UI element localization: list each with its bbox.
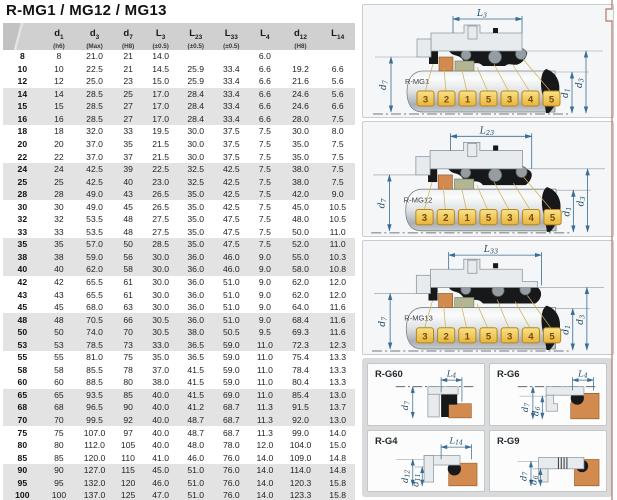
cell-value: 33 [42,226,77,239]
row-size: 85 [3,451,42,464]
cell-value: 51.0 [214,276,250,289]
cell-value: 26.5 [143,188,178,201]
cell-value: 47.5 [214,238,250,251]
row-size: 25 [3,175,42,188]
cell-value: 41.5 [178,389,214,402]
cell-value: 49.0 [76,188,113,201]
cell-value: 76.0 [214,464,250,477]
row-size: 40 [3,263,42,276]
dim-label-d7: d7 [401,401,411,410]
datasheet-page: R-MG1 / MG12 / MG13 d1(h6)d3(Max)d7(H8)L… [0,0,617,500]
cell-value: 68.7 [214,426,250,439]
cell-value: 85 [42,451,77,464]
cell-value [214,50,250,63]
cell-value: 21.6 [281,75,321,88]
cell-value: 14.0 [143,50,178,63]
row-size: 33 [3,226,42,239]
cell-value: 65.5 [76,276,113,289]
row-size: 10 [3,62,42,75]
cell-value: 60 [42,376,77,389]
cell-value: 36.0 [178,263,214,276]
row-size: 65 [3,389,42,402]
row-size: 90 [3,464,42,477]
cell-value: 90 [42,464,77,477]
callout: 1 [465,331,471,342]
cell-value: 9.0 [249,301,281,314]
cell-value: 47.0 [143,489,178,500]
cell-value: 15.8 [320,476,355,489]
callout: 4 [529,213,535,224]
cell-value: 14.0 [249,464,281,477]
cell-value: 32.0 [76,125,113,138]
cell-value: 17.0 [143,113,178,126]
cell-value: 110 [113,451,144,464]
table-row: 7575107.09740.048.768.711.399.014.0 [3,426,355,439]
table-row: 434365.56130.036.051.09.062.012.0 [3,288,355,301]
cell-value: 33.0 [143,338,178,351]
dim-label-d3: d3 [577,196,588,206]
cell-value: 74.0 [76,326,113,339]
table-row: 555581.07535.036.559.011.075.413.3 [3,351,355,364]
seal-diagram-r-mg1: R-MG1 3 2 1 5 3 4 5 L3 d7 d1 d3 [362,4,614,118]
table-row: 202037.03521.530.037.57.535.07.5 [3,138,355,151]
cell-value: 120.0 [76,451,113,464]
row-size: 55 [3,351,42,364]
cell-value: 50 [113,238,144,251]
cell-value: 35.0 [178,238,214,251]
cell-value: 19.2 [281,62,321,75]
cell-value: 62.0 [76,263,113,276]
row-size: 100 [3,489,42,500]
cell-value: 10.3 [320,251,355,264]
cell-value: 50.0 [281,226,321,239]
column-header: L4 [249,23,281,50]
detail-r-g60: R-G60 L4 d7 [367,363,485,426]
cell-value: 37.0 [143,364,178,377]
cell-value: 27 [113,113,144,126]
seat-part [439,57,453,71]
cell-value: 33.4 [214,113,250,126]
cell-value: 68.4 [281,313,321,326]
cell-value: 51.0 [214,301,250,314]
cell-value: 42.5 [76,163,113,176]
spec-table-header-row: d1(h6)d3(Max)d7(H8)L3(±0.5)L23(±0.5)L33(… [3,23,355,50]
cell-value: 38.0 [281,175,321,188]
cell-value: 30.0 [143,301,178,314]
cell-value: 40.0 [143,426,178,439]
cell-value: 46.0 [143,476,178,489]
table-row: 222237.03721.530.037.57.535.07.5 [3,150,355,163]
cell-value: 80.4 [281,376,321,389]
row-size: 50 [3,326,42,339]
cell-value: 23 [113,75,144,88]
cell-value: 112.0 [76,439,113,452]
cell-value: 97 [113,426,144,439]
cell-value: 15 [42,100,77,113]
cell-value: 57.0 [76,238,113,251]
cell-value: 42 [42,276,77,289]
cell-value: 36.0 [178,276,214,289]
dim-label-d3: d3 [575,78,586,88]
callout: 4 [528,95,534,106]
table-row: 141428.52517.028.433.46.624.65.6 [3,88,355,101]
cell-value: 7.5 [249,213,281,226]
row-size: 22 [3,150,42,163]
cell-value: 40 [42,263,77,276]
cell-value: 8 [42,50,77,63]
cell-value: 11.3 [249,426,281,439]
dim-label-d1: d1 [561,88,572,98]
cell-value: 32 [42,213,77,226]
cell-value: 120 [113,476,144,489]
cell-value: 18 [42,125,77,138]
cell-value: 100 [42,489,77,500]
cell-value: 13.3 [320,376,355,389]
cell-value: 58 [42,364,77,377]
cell-value: 7.5 [249,188,281,201]
cell-value: 127.0 [76,464,113,477]
cell-value: 12.3 [320,338,355,351]
cell-value: 9.0 [249,251,281,264]
cell-value: 6.0 [249,50,281,63]
cell-value: 12.0 [320,276,355,289]
cell-value: 65.5 [76,288,113,301]
table-row: 535378.57333.036.559.011.072.312.3 [3,338,355,351]
table-row: 484870.56630.536.051.09.068.411.6 [3,313,355,326]
column-header: d3(Max) [76,23,113,50]
dim-label-d7: d7 [377,198,388,209]
callout: 2 [443,213,448,224]
cell-value: 33.4 [214,75,250,88]
cell-value: 12.0 [320,288,355,301]
cell-value: 9.5 [249,326,281,339]
cell-value: 68 [42,401,77,414]
callout: 3 [507,331,512,342]
cell-value: 10.5 [320,213,355,226]
cell-value: 78.5 [76,338,113,351]
cell-value: 11.3 [249,414,281,427]
cell-value: 99.0 [281,426,321,439]
cell-value: 15.8 [320,489,355,500]
cell-value: 42.5 [214,188,250,201]
cell-value: 11.0 [320,226,355,239]
cell-value: 62.0 [281,276,321,289]
cell-value: 37.5 [214,150,250,163]
dim-label-L14: L14 [449,436,464,446]
row-size: 80 [3,439,42,452]
cell-value: 48.7 [178,426,214,439]
cell-value: 80 [113,376,144,389]
cell-value: 13.0 [320,414,355,427]
spec-table: d1(h6)d3(Max)d7(H8)L3(±0.5)L23(±0.5)L33(… [3,23,355,500]
cell-value: 56 [113,251,144,264]
cell-value: 32.5 [178,175,214,188]
dim-label-d7: d7 [379,79,390,90]
cell-value: 70.5 [76,313,113,326]
cell-value: 11.0 [249,376,281,389]
cell-value: 30.0 [143,251,178,264]
table-row: 323253.54827.535.047.57.548.010.5 [3,213,355,226]
cell-value: 38.0 [143,376,178,389]
cell-value: 75.4 [281,351,321,364]
callout: 5 [549,331,555,342]
table-row: 656593.58540.041.569.011.085.413.0 [3,389,355,402]
cell-value: 76.0 [214,451,250,464]
cell-value: 37.5 [214,138,250,151]
cell-value: 53 [42,338,77,351]
cell-value: 7.5 [249,125,281,138]
cell-value: 5.6 [320,75,355,88]
row-size: 42 [3,276,42,289]
cell-value: 45 [113,200,144,213]
table-row: 353557.05028.535.047.57.552.011.0 [3,238,355,251]
cell-value: 14.8 [320,464,355,477]
column-header: L33(±0.5) [214,23,250,50]
cell-value: 48 [113,213,144,226]
row-size: 20 [3,138,42,151]
row-size: 30 [3,200,42,213]
cell-value: 35.0 [178,200,214,213]
cell-value: 30.0 [178,150,214,163]
cell-value: 14.5 [143,62,178,75]
cell-value: 99.5 [76,414,113,427]
cell-value: 85.5 [76,364,113,377]
table-row: 161628.52717.028.433.46.628.07.5 [3,113,355,126]
cell-value: 114.0 [281,464,321,477]
row-size: 60 [3,376,42,389]
cell-value: 7.5 [320,113,355,126]
cell-value: 107.0 [76,426,113,439]
cell-value: 7.5 [249,138,281,151]
cell-value: 41.0 [143,451,178,464]
cell-value: 42.5 [214,175,250,188]
cell-value: 52.0 [281,238,321,251]
cell-value: 46.0 [214,263,250,276]
cell-value: 92 [113,414,144,427]
cell-value: 22.5 [76,62,113,75]
cell-value: 59.0 [214,351,250,364]
table-row: 707099.59240.048.768.711.392.013.0 [3,414,355,427]
cell-value: 33.4 [214,88,250,101]
row-size: 75 [3,426,42,439]
cell-value: 27.5 [143,213,178,226]
table-row: 606088.58038.041.559.011.080.413.3 [3,376,355,389]
cell-value: 66 [113,313,144,326]
cell-value: 33 [113,125,144,138]
cell-value: 27.5 [143,226,178,239]
cell-value: 7.5 [249,226,281,239]
table-row: 686896.59040.041.268.711.391.513.7 [3,401,355,414]
dim-label-d3: d3 [576,315,587,325]
cell-value: 28.5 [143,238,178,251]
column-header: L14 [320,23,355,50]
cell-value: 51.0 [214,288,250,301]
cell-value: 24 [42,163,77,176]
dim-label-d12: d12 [401,469,411,482]
table-row: 383859.05630.036.046.09.055.010.3 [3,251,355,264]
cell-value: 59.0 [214,364,250,377]
cell-value: 76.0 [214,476,250,489]
cell-value: 78.0 [214,439,250,452]
row-size: 48 [3,313,42,326]
cell-value: 16 [42,113,77,126]
cell-value: 39 [113,163,144,176]
detail-r-g4: R-G4 L14 d12 d11 [367,430,485,493]
table-row: 9090127.011545.051.076.014.0114.014.8 [3,464,355,477]
cell-value: 28.5 [76,100,113,113]
cell-value: 59.0 [214,338,250,351]
cell-value: 137.0 [76,489,113,500]
table-row: 404062.05830.036.046.09.058.010.8 [3,263,355,276]
table-row: 333353.54827.535.047.57.550.011.0 [3,226,355,239]
cell-value: 51.0 [178,476,214,489]
cell-value: 69.0 [214,389,250,402]
cell-value: 32.5 [178,163,214,176]
cell-value: 13.3 [320,364,355,377]
column-header: d7(H8) [113,23,144,50]
cell-value: 22.5 [143,163,178,176]
cell-value: 40.0 [143,401,178,414]
cell-value: 30.0 [178,125,214,138]
cell-value: 70 [42,414,77,427]
cell-value: 43 [113,188,144,201]
cell-value: 11.6 [320,313,355,326]
cell-value: 38 [42,251,77,264]
cell-value: 92.0 [281,414,321,427]
cell-value: 25 [113,88,144,101]
cell-value [320,50,355,63]
callout: 1 [464,213,470,224]
cell-value: 7.5 [320,138,355,151]
table-row: 8821.02114.06.0 [3,50,355,63]
row-size: 70 [3,414,42,427]
row-size: 28 [3,188,42,201]
row-size: 14 [3,88,42,101]
cell-value: 115 [113,464,144,477]
cell-value: 7.5 [249,238,281,251]
cell-value: 19.5 [143,125,178,138]
cell-value: 45.0 [281,200,321,213]
cell-value: 21.5 [143,150,178,163]
cell-value: 20 [42,138,77,151]
cell-value: 95 [42,476,77,489]
column-header: L23(±0.5) [178,23,214,50]
callout: 2 [444,95,449,106]
cell-value: 28.5 [76,113,113,126]
spec-table-body: 8821.02114.06.0101022.52114.525.933.46.6… [3,50,355,500]
cell-value: 14.0 [249,451,281,464]
seal-diagram-r-mg12: R-MG12 3 2 1 5 3 4 5 L23 d7 d1 d3 [362,121,614,237]
cell-value: 38.0 [281,163,321,176]
dim-label-L23: L23 [479,126,494,137]
diagram-label: R-MG1 [405,77,429,86]
cell-value: 41.5 [178,364,214,377]
callout: 3 [507,95,512,106]
table-row: 100100137.012547.051.076.014.0123.315.8 [3,489,355,500]
cell-value: 40.0 [143,389,178,402]
cell-value: 53.5 [76,226,113,239]
cell-value: 35 [42,238,77,251]
cell-value: 40 [113,175,144,188]
dim-label-d7: d7 [521,403,531,412]
cell-value: 120.3 [281,476,321,489]
cell-value: 7.5 [249,163,281,176]
row-size: 38 [3,251,42,264]
cell-value: 14.0 [249,476,281,489]
cell-value: 55.0 [281,251,321,264]
table-row: 9595132.012046.051.076.014.0120.315.8 [3,476,355,489]
cell-value: 30.0 [281,125,321,138]
cell-value: 28.5 [76,88,113,101]
cell-value: 91.5 [281,401,321,414]
cell-value: 9.0 [249,288,281,301]
cell-value: 21.5 [143,138,178,151]
row-size: 24 [3,163,42,176]
cell-value: 45 [42,301,77,314]
cell-value: 68.7 [214,401,250,414]
cell-value: 9.0 [249,276,281,289]
cell-value: 21 [113,50,144,63]
detail-r-g9: R-G9 d7 d6 [489,430,607,493]
cell-value: 38.0 [178,326,214,339]
cell-value: 64.0 [281,301,321,314]
cell-value: 30.0 [143,288,178,301]
cell-value: 35.0 [281,138,321,151]
detail-r-g6: R-G6 L4 d7 d6 [489,363,607,426]
row-size: 58 [3,364,42,377]
cell-value: 109.0 [281,451,321,464]
detail-label: R-G6 [497,369,520,380]
callout: 5 [486,213,492,224]
table-row: 252542.54023.032.542.57.538.07.5 [3,175,355,188]
cell-value: 17.0 [143,100,178,113]
cell-value: 6.6 [320,62,355,75]
face-part [455,61,474,71]
dim-label-d1: d1 [562,325,573,335]
cell-value: 43 [42,288,77,301]
cell-value: 13.7 [320,401,355,414]
dim-label-d7: d7 [519,471,529,480]
cell-value: 49.0 [76,200,113,213]
cell-value: 37 [113,150,144,163]
cell-value: 7.5 [320,150,355,163]
table-row: 585885.57837.041.559.011.078.413.3 [3,364,355,377]
cell-value: 15.0 [320,439,355,452]
row-size: 43 [3,288,42,301]
cell-value: 11.3 [249,401,281,414]
cell-value: 75 [113,351,144,364]
callout: 3 [507,213,513,224]
table-row: 505074.07030.538.050.59.569.311.6 [3,326,355,339]
cell-value: 85.4 [281,389,321,402]
cell-value [281,50,321,63]
cell-value: 90 [113,401,144,414]
cell-value: 35.0 [178,188,214,201]
cell-value: 6.6 [249,100,281,113]
cell-value: 11.6 [320,326,355,339]
row-size: 45 [3,301,42,314]
cell-value: 68.7 [214,414,250,427]
cell-value: 63 [113,301,144,314]
column-header: L3(±0.5) [143,23,178,50]
cell-value: 28.4 [178,100,214,113]
row-size: 95 [3,476,42,489]
cell-value: 14.8 [320,451,355,464]
cell-value: 21.0 [76,50,113,63]
cell-value: 6.6 [249,62,281,75]
cell-value: 9.0 [320,188,355,201]
table-row: 424265.56130.036.051.09.062.012.0 [3,276,355,289]
